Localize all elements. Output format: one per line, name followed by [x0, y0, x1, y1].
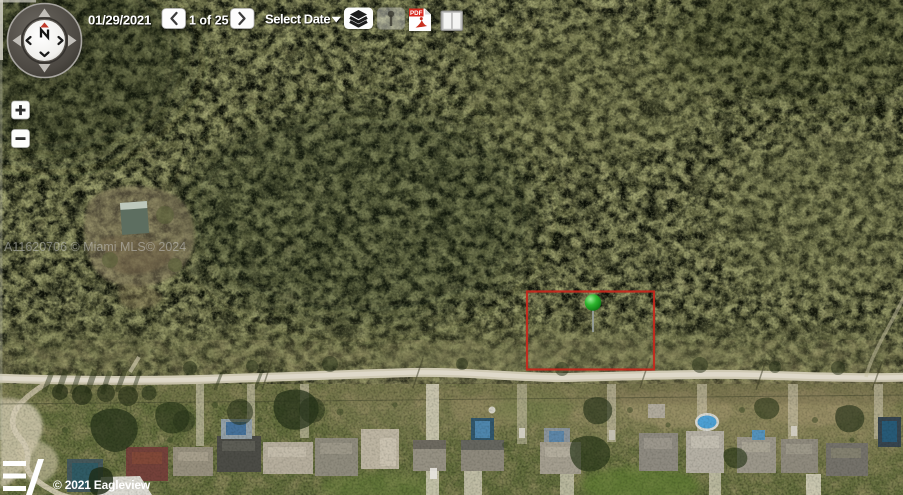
svg-text:1 of 25: 1 of 25 — [189, 14, 229, 28]
svg-text:01/29/2021: 01/29/2021 — [88, 13, 151, 28]
svg-text:© 2021 Eagleview: © 2021 Eagleview — [53, 478, 151, 492]
svg-text:A11620706 © Miami MLS© 2024: A11620706 © Miami MLS© 2024 — [4, 240, 186, 254]
svg-text:PDF: PDF — [410, 10, 423, 17]
svg-text:Select Date: Select Date — [265, 12, 330, 27]
